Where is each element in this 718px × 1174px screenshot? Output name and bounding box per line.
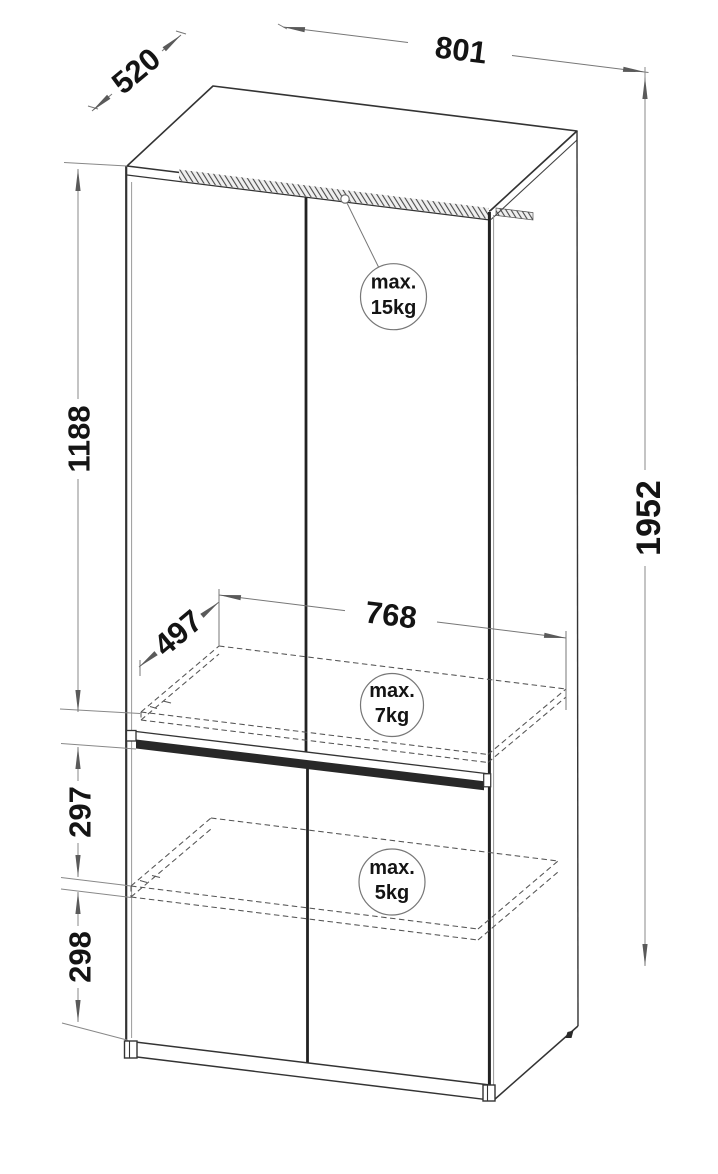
svg-text:5kg: 5kg [375,882,409,904]
svg-text:max.: max. [371,272,417,294]
svg-text:298: 298 [63,931,98,983]
svg-text:768: 768 [363,594,419,635]
svg-text:801: 801 [433,29,489,70]
svg-text:297: 297 [63,786,98,838]
svg-text:15kg: 15kg [371,297,417,319]
svg-text:7kg: 7kg [375,705,409,727]
svg-text:max.: max. [369,680,415,702]
svg-text:1188: 1188 [62,405,97,472]
svg-text:1952: 1952 [630,480,668,556]
svg-text:max.: max. [369,857,415,879]
